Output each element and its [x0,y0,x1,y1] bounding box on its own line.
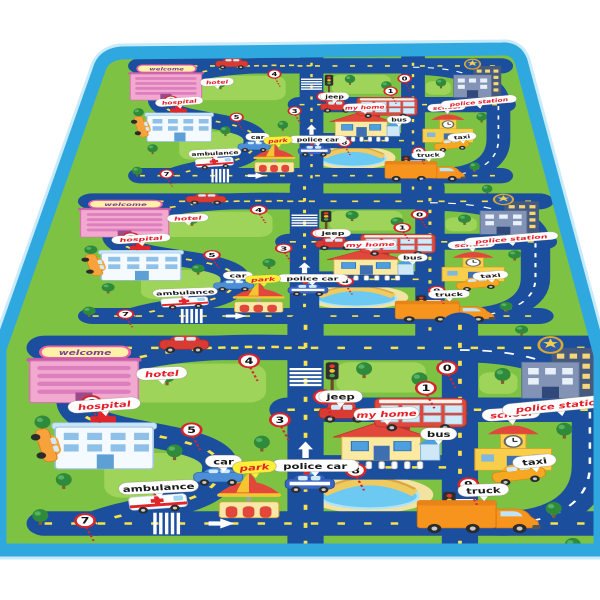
mat-pattern-row-near [26,325,600,555]
play-mat-scene: welcome [0,0,600,600]
mat-surface [0,49,600,555]
play-mat-photo: welcome [0,0,600,600]
